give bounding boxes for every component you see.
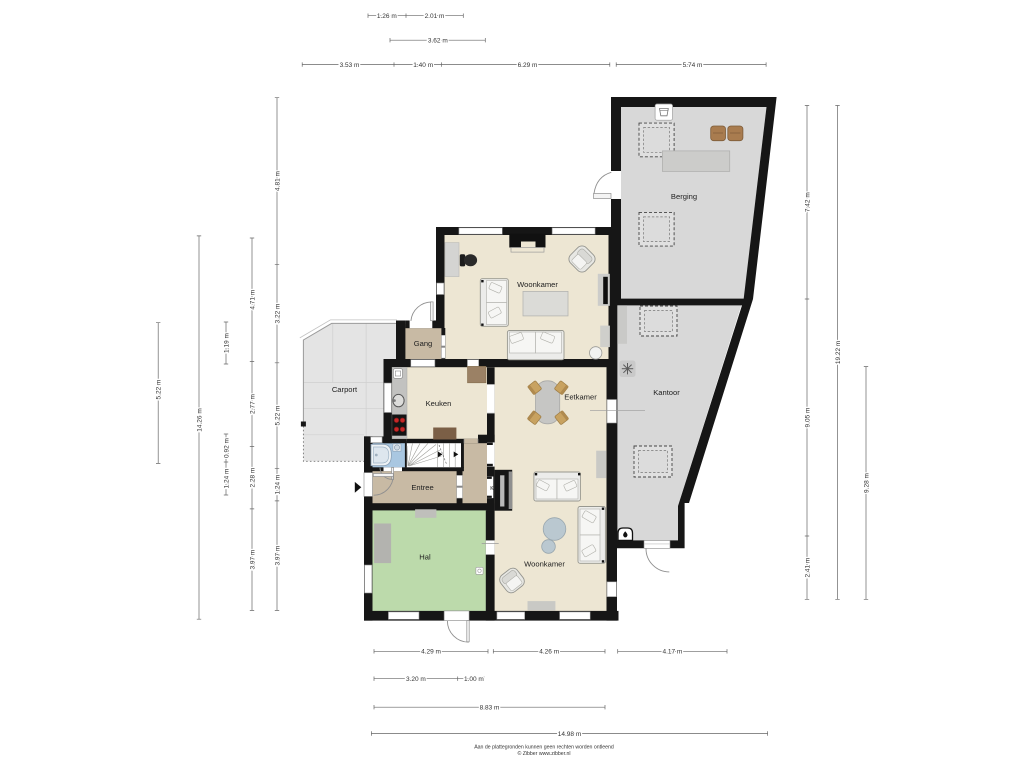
svg-text:Berging: Berging bbox=[671, 192, 697, 201]
svg-text:6.29 m: 6.29 m bbox=[518, 62, 538, 69]
svg-text:4.17 m: 4.17 m bbox=[662, 649, 682, 656]
svg-text:8.83 m: 8.83 m bbox=[480, 705, 500, 712]
svg-text:K: K bbox=[490, 486, 494, 492]
svg-text:0.92 m: 0.92 m bbox=[223, 438, 230, 458]
svg-text:2.41 m: 2.41 m bbox=[804, 558, 811, 578]
svg-text:© Zibber www.zibber.nl: © Zibber www.zibber.nl bbox=[517, 750, 570, 757]
svg-text:4.81 m: 4.81 m bbox=[274, 171, 281, 191]
svg-text:5.22 m: 5.22 m bbox=[274, 406, 281, 426]
svg-text:2.28 m: 2.28 m bbox=[249, 468, 256, 488]
svg-text:Gang: Gang bbox=[414, 339, 433, 348]
svg-text:19.22 m: 19.22 m bbox=[835, 341, 842, 365]
svg-text:3.20 m: 3.20 m bbox=[406, 676, 426, 683]
svg-text:3.53 m: 3.53 m bbox=[340, 62, 360, 69]
svg-text:5.22 m: 5.22 m bbox=[155, 380, 162, 400]
svg-text:14.98 m: 14.98 m bbox=[558, 731, 582, 738]
svg-text:Woonkamer: Woonkamer bbox=[517, 280, 558, 289]
svg-text:1.19 m: 1.19 m bbox=[223, 333, 230, 353]
svg-text:9.05 m: 9.05 m bbox=[804, 408, 811, 428]
svg-text:Eetkamer: Eetkamer bbox=[564, 393, 597, 402]
svg-text:Woonkamer: Woonkamer bbox=[524, 560, 565, 569]
svg-text:7.42 m: 7.42 m bbox=[804, 192, 811, 212]
svg-text:3.22 m: 3.22 m bbox=[274, 304, 281, 324]
svg-text:4.26 m: 4.26 m bbox=[539, 649, 559, 656]
svg-text:4.29 m: 4.29 m bbox=[421, 649, 441, 656]
svg-text:3.97 m: 3.97 m bbox=[274, 546, 281, 566]
svg-text:14.26 m: 14.26 m bbox=[196, 408, 203, 432]
svg-text:Kantoor: Kantoor bbox=[653, 388, 680, 397]
svg-text:1.00 m: 1.00 m bbox=[464, 676, 484, 683]
svg-text:3.97 m: 3.97 m bbox=[249, 550, 256, 570]
svg-text:9.28 m: 9.28 m bbox=[863, 473, 870, 493]
svg-text:5.74 m: 5.74 m bbox=[683, 62, 703, 69]
svg-text:Aan de plattegronden kunnen ge: Aan de plattegronden kunnen geen rechten… bbox=[474, 745, 614, 751]
svg-text:Keuken: Keuken bbox=[426, 399, 452, 408]
svg-text:1.26 m: 1.26 m bbox=[377, 13, 397, 20]
svg-text:3.62 m: 3.62 m bbox=[428, 38, 448, 45]
svg-text:2.77 m: 2.77 m bbox=[249, 394, 256, 414]
svg-text:Carport: Carport bbox=[332, 385, 358, 394]
svg-text:4.71 m: 4.71 m bbox=[249, 290, 256, 310]
svg-text:Hal: Hal bbox=[419, 553, 431, 562]
svg-text:1.24 m: 1.24 m bbox=[223, 469, 230, 489]
svg-text:Entree: Entree bbox=[411, 483, 433, 492]
svg-text:1.40 m: 1.40 m bbox=[413, 62, 433, 69]
svg-text:2.01 m: 2.01 m bbox=[425, 13, 445, 20]
svg-text:1.24 m: 1.24 m bbox=[274, 475, 281, 495]
